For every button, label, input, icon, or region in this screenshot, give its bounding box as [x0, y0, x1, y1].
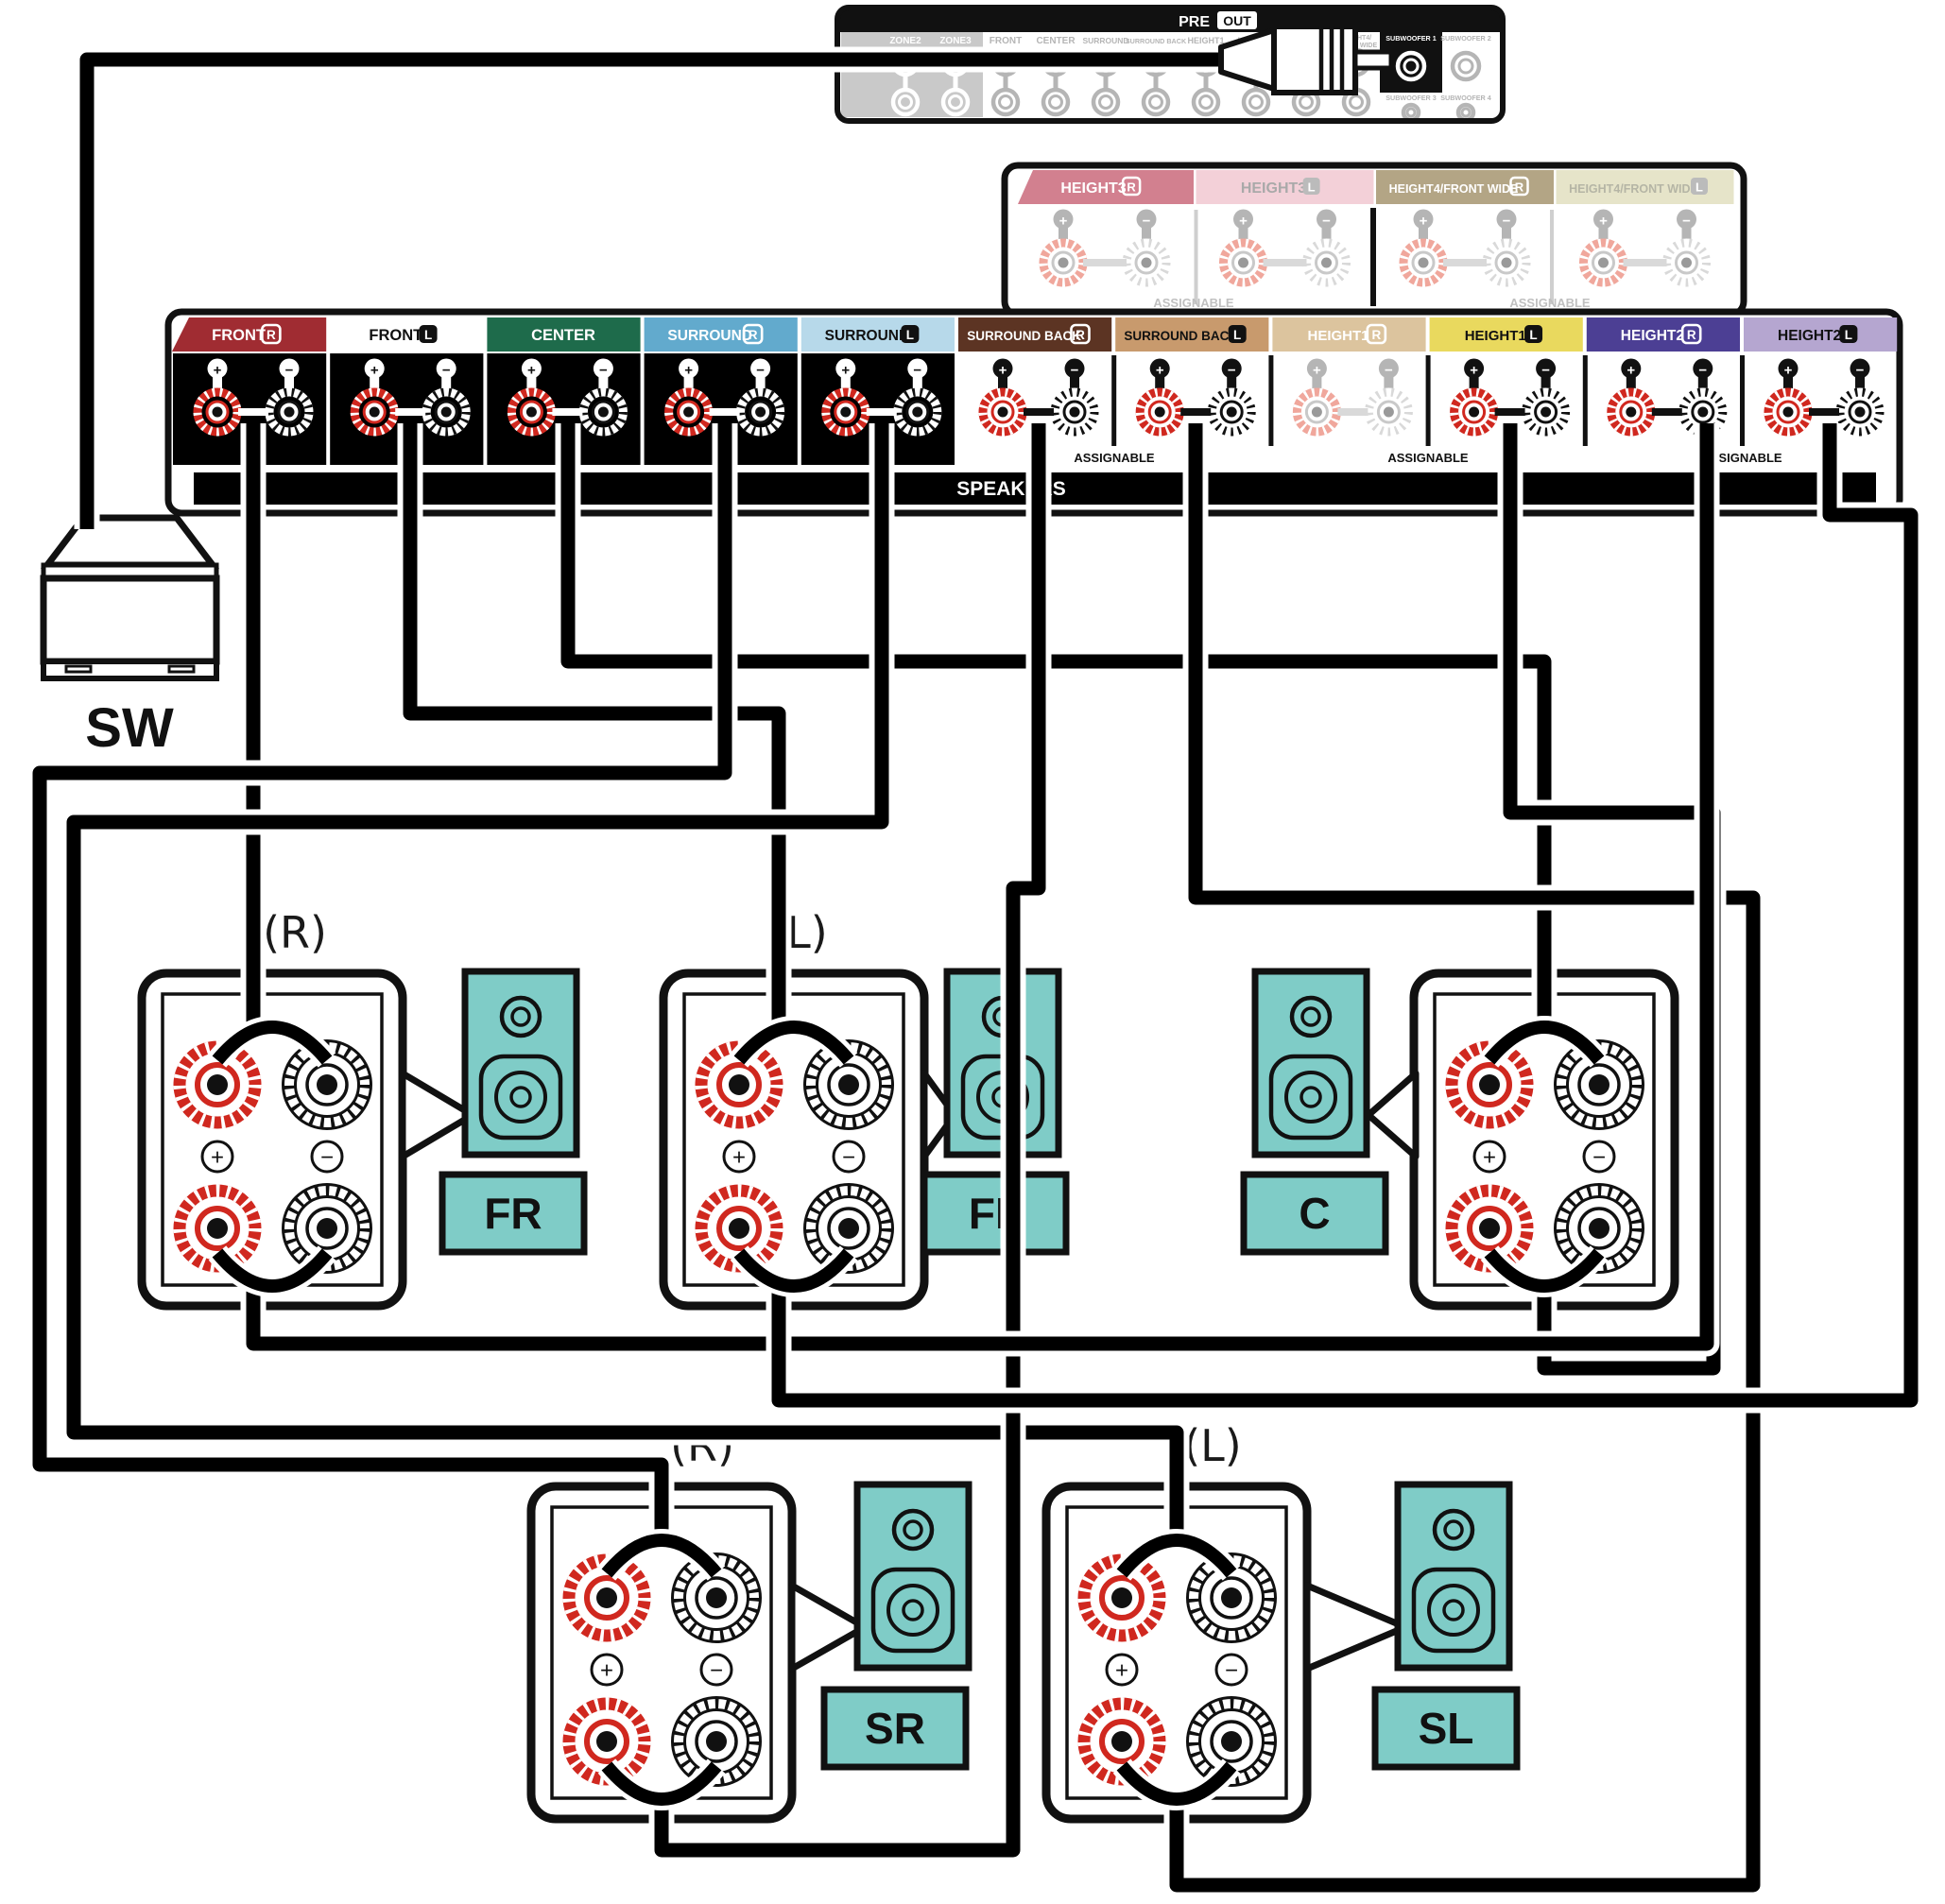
section-label: SURROUND — [825, 328, 910, 344]
polarity-symbol: + — [1115, 1658, 1128, 1684]
speaker-block-sr: +−SR(R) — [531, 1420, 969, 1819]
section-label: HEIGHT2 — [1621, 328, 1684, 344]
jack-stem — [954, 76, 958, 89]
post-center — [1598, 258, 1609, 268]
pair-link — [1083, 259, 1127, 266]
polarity-symbol: + — [1470, 363, 1478, 379]
jack-stem — [1154, 76, 1159, 89]
sw-foot — [169, 666, 194, 672]
channel-letter: L — [1233, 328, 1241, 342]
position-label: (L) — [1183, 1420, 1242, 1471]
separator — [1426, 355, 1431, 446]
separator — [1111, 355, 1116, 446]
post-center — [729, 1218, 749, 1239]
post-center — [1697, 407, 1708, 418]
polarity-symbol: − — [1856, 363, 1865, 379]
position-label: (R) — [263, 907, 327, 958]
post-center — [755, 407, 766, 418]
speaker-name: C — [1299, 1189, 1330, 1238]
channel-letter: R — [749, 328, 758, 342]
section-label: HEIGHT3 — [1241, 180, 1306, 197]
post-center — [706, 1587, 727, 1608]
polarity-symbol: + — [600, 1658, 613, 1684]
polarity-symbol: − — [1228, 363, 1236, 379]
polarity-symbol: − — [842, 1145, 855, 1171]
post-center — [998, 407, 1008, 418]
pair-link — [710, 408, 740, 416]
post-center — [706, 1731, 727, 1752]
pair-link — [1180, 408, 1211, 416]
post-center — [838, 1218, 859, 1239]
channel-letter: R — [1371, 328, 1381, 342]
subwoofer-box: SW — [43, 518, 216, 759]
polarity-symbol: + — [527, 363, 536, 379]
post-center — [596, 1731, 617, 1752]
column-label: SUBWOOFER 3 — [1386, 94, 1437, 102]
speaker-block-fr: +−FR(R) — [142, 907, 584, 1306]
channel-letter: R — [267, 328, 276, 342]
post-center — [1142, 258, 1152, 268]
post-center — [1227, 407, 1237, 418]
polarity-symbol: + — [1420, 214, 1428, 230]
pair-link — [238, 408, 268, 416]
column-label: SUBWOOFER 1 — [1386, 34, 1437, 43]
polarity-symbol: − — [1322, 214, 1331, 230]
post-center — [1589, 1218, 1609, 1239]
assignable-label: ASSIGNABLE — [1509, 296, 1591, 310]
post-center — [317, 1218, 337, 1239]
callout-tail — [1307, 1586, 1405, 1669]
channel-letter: R — [1515, 180, 1524, 195]
pair-link — [395, 408, 425, 416]
column-label: HEIGHT1 — [1187, 36, 1224, 45]
post-center — [317, 1074, 337, 1095]
section-label: FRONT — [212, 327, 266, 344]
polarity-symbol: + — [732, 1145, 746, 1171]
pair-link — [1809, 408, 1839, 416]
post-center — [1111, 1731, 1132, 1752]
speaker-block-c: +−C — [1244, 971, 1675, 1306]
sw-foot — [66, 666, 91, 672]
polarity-symbol: − — [1541, 363, 1550, 379]
section-label: HEIGHT1 — [1465, 328, 1526, 344]
post-center — [596, 1587, 617, 1608]
jack-stem — [1004, 76, 1008, 89]
column-label: SURROUND — [1082, 36, 1128, 45]
sw-top — [47, 518, 213, 565]
pair-link — [552, 408, 582, 416]
channel-letter: L — [906, 328, 914, 342]
polarity-symbol: − — [710, 1658, 723, 1684]
separator — [1195, 210, 1198, 304]
speaker-icon — [1255, 971, 1367, 1155]
polarity-symbol: + — [1313, 363, 1321, 379]
jack-stem — [904, 76, 908, 89]
post-center — [370, 407, 380, 418]
column-label: FRONT — [990, 36, 1022, 46]
section-label: HEIGHT2 — [1778, 328, 1841, 344]
channel-letter: L — [1845, 328, 1852, 342]
polarity-symbol: − — [320, 1145, 334, 1171]
channel-letter: L — [424, 328, 432, 342]
post-center — [1681, 258, 1692, 268]
polarity-symbol: + — [1599, 214, 1608, 230]
channel-letter: L — [1308, 180, 1316, 195]
column-label: ZONE3 — [939, 36, 972, 46]
pair-link — [1337, 408, 1368, 416]
polarity-symbol: + — [1239, 214, 1248, 230]
post-center — [526, 407, 537, 418]
section-label: HEIGHT4/FRONT WIDE — [1569, 182, 1698, 196]
pair-link — [1624, 259, 1667, 266]
speaker-icon — [1398, 1484, 1509, 1668]
polarity-symbol: + — [1483, 1145, 1496, 1171]
speaker-name: FR — [484, 1189, 542, 1238]
polarity-symbol: − — [442, 363, 451, 379]
column-label: SUBWOOFER 4 — [1440, 94, 1491, 102]
polarity-symbol: − — [285, 363, 294, 379]
separator — [1740, 355, 1745, 446]
assignable-label: ASSIGNABLE — [1074, 451, 1155, 465]
separator — [1268, 355, 1273, 446]
speaker-icon — [465, 971, 577, 1155]
pair-link — [1264, 259, 1307, 266]
polarity-symbol: + — [1059, 214, 1068, 230]
post-center — [1321, 258, 1332, 268]
post-center — [1384, 407, 1394, 418]
post-center — [1059, 258, 1069, 268]
section-label: FRONT — [369, 327, 422, 344]
post-center — [1070, 407, 1080, 418]
polarity-symbol: + — [1156, 363, 1164, 379]
speaker-block-sl: +−SL(L) — [1046, 1420, 1517, 1819]
post-center — [1541, 407, 1551, 418]
post-center — [1221, 1731, 1242, 1752]
assignable-label: ASSIGNABLE — [1153, 296, 1234, 310]
pre-label: PRE — [1179, 14, 1210, 30]
post-center — [284, 407, 295, 418]
post-center — [912, 407, 922, 418]
polarity-symbol: + — [1784, 363, 1793, 379]
polarity-symbol: + — [1627, 363, 1635, 379]
section-label: HEIGHT3 — [1060, 180, 1126, 197]
section-label: SURROUND BACK — [1124, 329, 1238, 343]
post-center — [1238, 258, 1248, 268]
polarity-symbol: + — [841, 363, 850, 379]
pair-link — [1443, 259, 1487, 266]
speaker-wiring-diagram: HEIGHT3R+−HEIGHT3L+−HEIGHT4/FRONT WIDER+… — [0, 0, 1945, 1904]
post-center — [683, 407, 694, 418]
column-label: SUBWOOFER 2 — [1440, 34, 1491, 43]
post-center — [729, 1074, 749, 1095]
callout-tail — [792, 1586, 865, 1669]
post-center — [207, 1218, 228, 1239]
polarity-symbol: − — [1503, 214, 1511, 230]
polarity-symbol: − — [1385, 363, 1393, 379]
post-center — [840, 407, 851, 418]
polarity-symbol: − — [756, 363, 765, 379]
jack-stem — [1054, 76, 1059, 89]
jack-stem — [1104, 76, 1109, 89]
column-label: SURROUND BACK — [1126, 37, 1187, 45]
assignable-label: ASSIGNABLE — [1387, 451, 1469, 465]
post-center — [213, 407, 223, 418]
sw-body — [43, 578, 216, 661]
polarity-symbol: − — [1698, 363, 1707, 379]
polarity-symbol: − — [599, 363, 608, 379]
section-label: SURROUND BACK — [967, 329, 1081, 343]
column-label: ZONE2 — [889, 36, 921, 46]
channel-letter: L — [1529, 328, 1537, 342]
post-center — [1502, 258, 1512, 268]
sw-label: SW — [85, 697, 174, 759]
separator — [1550, 210, 1554, 304]
speaker-name: SL — [1419, 1704, 1474, 1753]
post-center — [1479, 1074, 1500, 1095]
channel-letter: L — [1695, 180, 1703, 195]
channel-letter: R — [1076, 328, 1085, 342]
plug-tip — [1355, 52, 1391, 68]
section-label: HEIGHT4/FRONT WIDE — [1389, 182, 1519, 196]
polarity-symbol: − — [1682, 214, 1691, 230]
column-label: CENTER — [1036, 36, 1076, 46]
diagram-canvas: HEIGHT3R+−HEIGHT3L+−HEIGHT4/FRONT WIDER+… — [0, 0, 1945, 1904]
post-center — [441, 407, 452, 418]
post-center — [1111, 1587, 1132, 1608]
callout-tail — [1368, 1073, 1416, 1157]
post-center — [1312, 407, 1322, 418]
pair-link — [867, 408, 897, 416]
post-center — [1479, 1218, 1500, 1239]
pair-link — [1652, 408, 1682, 416]
polarity-symbol: + — [370, 363, 379, 379]
post-center — [207, 1074, 228, 1095]
polarity-symbol: − — [1071, 363, 1079, 379]
jack-stem — [1204, 76, 1209, 89]
channel-letter: R — [1127, 180, 1136, 195]
polarity-symbol: + — [684, 363, 693, 379]
height34-terminal-panel: HEIGHT3R+−HEIGHT3L+−HEIGHT4/FRONT WIDER+… — [1005, 165, 1744, 315]
speaker-icon — [857, 1484, 969, 1668]
out-label: OUT — [1223, 13, 1251, 28]
separator — [1583, 355, 1588, 446]
post-center — [1419, 258, 1429, 268]
speaker-name: SR — [865, 1704, 925, 1753]
post-center — [1783, 407, 1794, 418]
polarity-symbol: + — [211, 1145, 224, 1171]
pair-link — [1495, 408, 1525, 416]
channel-letter: R — [1687, 328, 1696, 342]
separator — [1370, 208, 1376, 306]
post-center — [598, 407, 609, 418]
post-center — [1221, 1587, 1242, 1608]
pair-link — [1024, 408, 1054, 416]
polarity-symbol: + — [999, 363, 1007, 379]
section-label: HEIGHT1 — [1307, 328, 1368, 344]
post-center — [1626, 407, 1636, 418]
post-center — [838, 1074, 859, 1095]
polarity-symbol: − — [1143, 214, 1151, 230]
polarity-symbol: + — [214, 363, 222, 379]
polarity-symbol: − — [1225, 1658, 1238, 1684]
section-label: CENTER — [531, 327, 595, 344]
post-center — [1155, 407, 1165, 418]
polarity-symbol: − — [1592, 1145, 1606, 1171]
post-center — [1589, 1074, 1609, 1095]
post-center — [1855, 407, 1866, 418]
section-label: SURROUND — [667, 328, 752, 344]
polarity-symbol: − — [913, 363, 921, 379]
post-center — [1469, 407, 1479, 418]
